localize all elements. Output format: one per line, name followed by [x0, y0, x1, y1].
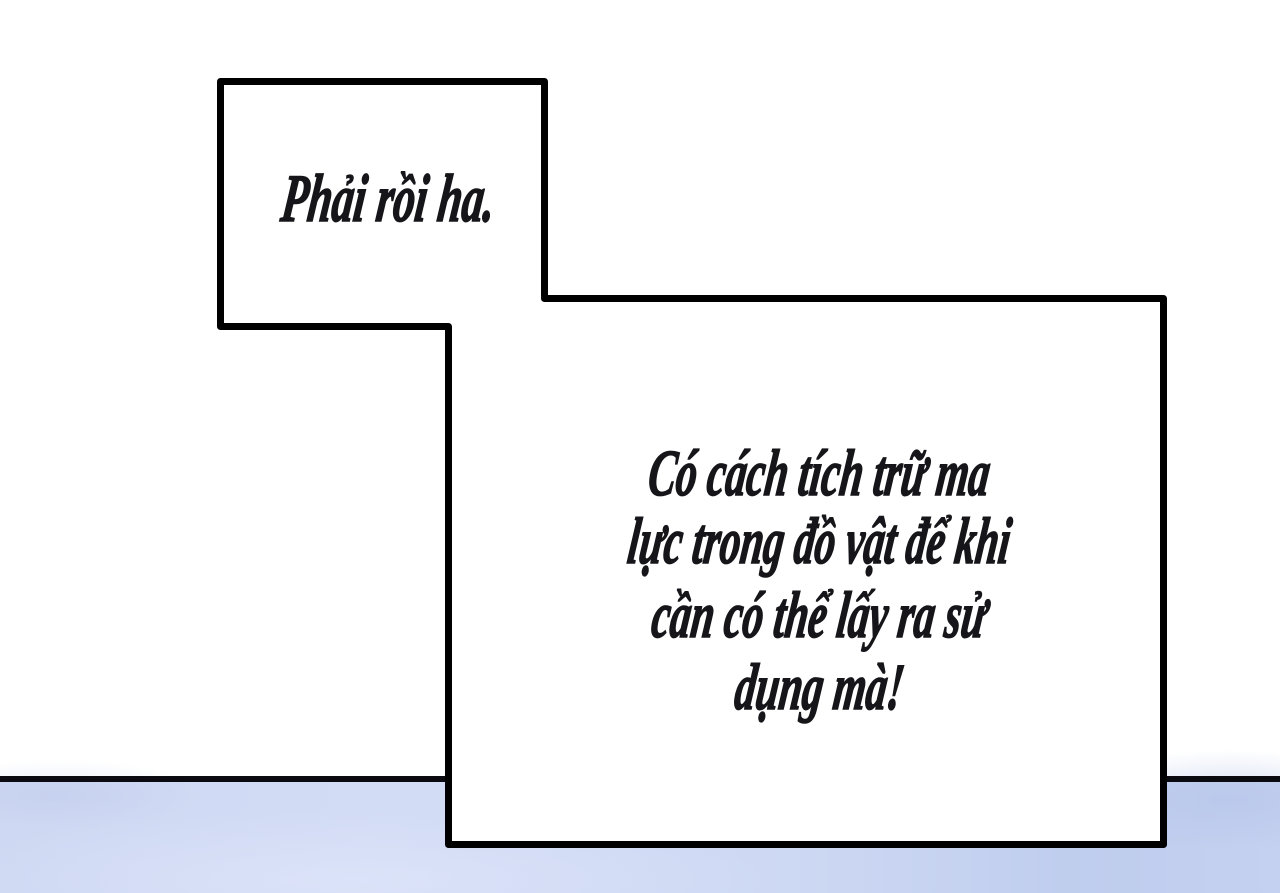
- svg-text:cần có thể lấy ra sử: cần có thể lấy ra sử: [648, 579, 994, 652]
- svg-text:dụng mà!: dụng mà!: [731, 651, 908, 724]
- svg-text:lực trong đồ vật để khi: lực trong đồ vật để khi: [624, 505, 1015, 578]
- svg-text:Có cách tích trữ ma: Có cách tích trữ ma: [645, 437, 995, 510]
- svg-text:Phải rồi ha.: Phải rồi ha.: [277, 160, 500, 236]
